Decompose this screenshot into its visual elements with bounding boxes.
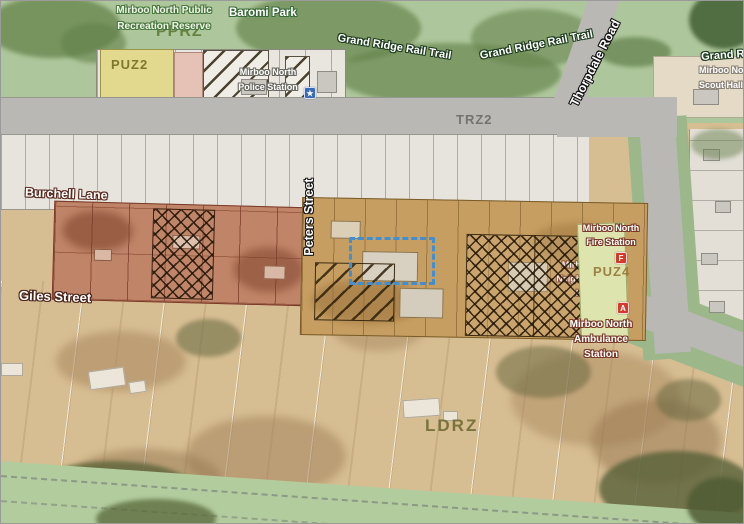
building xyxy=(701,253,718,265)
map-canvas[interactable]: Mirboo North Neighbourhood House ★ F A M… xyxy=(0,0,744,524)
recreation-reserve-label: Mirboo North Public Recreation Reserve xyxy=(87,3,241,35)
building xyxy=(709,301,725,313)
road-main xyxy=(1,97,613,135)
police-station-line2: Police Station xyxy=(229,80,307,95)
ambulance-station-icon[interactable]: A xyxy=(617,302,629,314)
fire-station-label: Mirboo North Fire Station xyxy=(573,221,649,250)
tree-clump xyxy=(176,319,241,357)
overlay-hatch-parcel xyxy=(151,208,215,300)
recreation-reserve-line2: Recreation Reserve xyxy=(87,19,241,35)
police-station-line1: Mirboo North xyxy=(229,65,307,80)
soil-patch xyxy=(62,210,133,252)
building xyxy=(715,201,731,213)
zone-code-ldrz: LDRZ xyxy=(425,416,478,436)
fire-station-line1: Mirboo North xyxy=(573,221,649,235)
ambulance-station-line3: Station xyxy=(557,347,645,362)
ambulance-station-label: Mirboo North Ambulance Station xyxy=(557,317,645,362)
police-station-icon[interactable]: ★ xyxy=(304,87,316,99)
tree-clump xyxy=(656,379,721,421)
selected-parcel-outline[interactable] xyxy=(349,237,435,285)
building xyxy=(399,288,444,319)
peters-street-label: Peters Street xyxy=(302,178,316,255)
zone-code-trz2: TRZ2 xyxy=(456,112,493,127)
building xyxy=(317,71,337,93)
scout-hall-line2: Scout Hall xyxy=(699,78,744,93)
building xyxy=(263,265,285,280)
scout-hall-line1: Mirboo North xyxy=(699,63,744,78)
burchell-lane-label: Burchell Lane xyxy=(25,186,108,203)
tree-clump xyxy=(691,129,744,159)
fire-station-icon[interactable]: F xyxy=(615,252,627,264)
zone-code-puz: PUZ2 xyxy=(111,57,148,72)
farm-building xyxy=(1,363,23,376)
farm-building xyxy=(128,380,147,394)
recreation-reserve-line1: Mirboo North Public xyxy=(87,3,241,19)
zone-code-puz4: PUZ4 xyxy=(593,264,630,279)
building xyxy=(94,249,112,261)
scout-hall-label: Mirboo North Scout Hall xyxy=(699,63,744,94)
police-station-label: Mirboo North Police Station xyxy=(229,65,307,96)
ambulance-station-line2: Ambulance xyxy=(557,332,645,347)
ambulance-station-line1: Mirboo North xyxy=(557,317,645,332)
giles-street-label: Giles Street xyxy=(19,288,92,306)
baromi-park-label: Baromi Park xyxy=(229,7,297,19)
fire-station-line2: Fire Station xyxy=(573,235,649,249)
